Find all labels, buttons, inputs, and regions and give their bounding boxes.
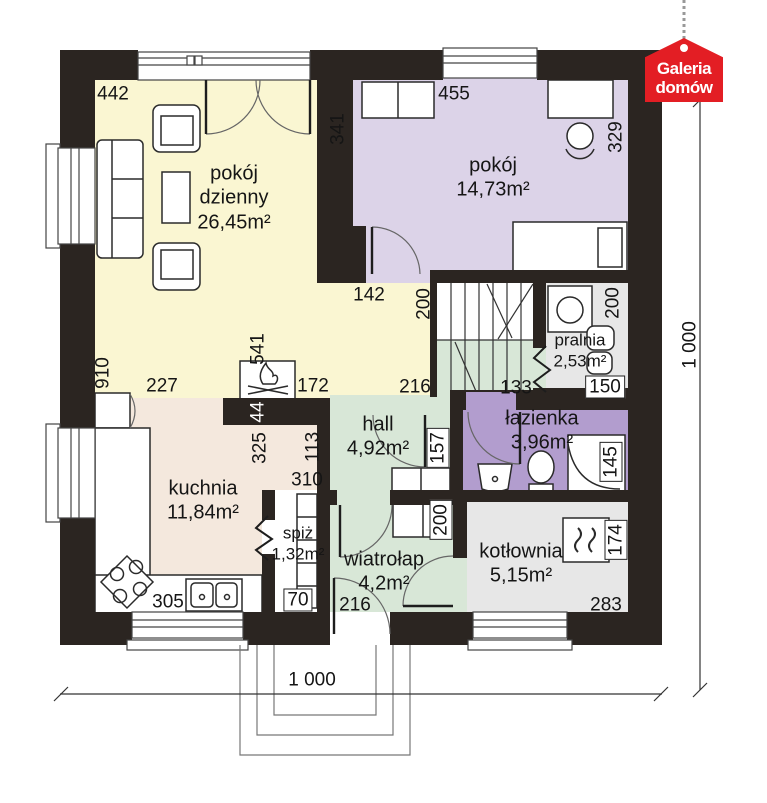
room-label-boiler: kotłownia 5,15m² <box>479 540 562 589</box>
dim-133: 133 <box>500 379 532 398</box>
dim-305: 305 <box>152 593 184 612</box>
boiler <box>563 518 609 562</box>
room-name: pokój <box>456 154 529 178</box>
room-label-kitchen: kuchnia 11,84m² <box>167 477 239 526</box>
dim-310: 310 <box>291 471 323 490</box>
dim-341: 341 <box>329 113 348 145</box>
room-name: kotłownia <box>479 540 562 564</box>
badge-line-2: domów <box>656 78 713 97</box>
chair <box>567 123 593 149</box>
room-label-vestibule: wiatrołap 4,2m² <box>344 548 424 597</box>
desk <box>548 80 613 118</box>
living-window <box>58 148 95 244</box>
room-label-laundry: pralnia 2,53m² <box>554 330 607 371</box>
room-area: 4,2m² <box>344 572 424 596</box>
room-area: 3,96m² <box>505 431 578 455</box>
dim-44: 44 <box>249 401 268 422</box>
room-area: 11,84m² <box>167 501 239 525</box>
room-name: wiatrołap <box>344 548 424 572</box>
dim-total-width: 1 000 <box>288 671 336 690</box>
boiler-bottom-sill <box>468 640 572 650</box>
kitchen-bottom-sill <box>127 640 248 650</box>
fridge <box>95 393 130 428</box>
toilet <box>528 451 554 483</box>
dim-150: 150 <box>585 376 625 399</box>
room-name: pokój dzienny <box>197 161 270 210</box>
floor-plan: 442 455 341 329 142 200 200 150 133 216 … <box>0 0 767 803</box>
room-floors <box>95 78 628 615</box>
kitchen-window <box>58 428 95 518</box>
dim-200-stairs: 200 <box>415 288 434 320</box>
dim-145: 145 <box>600 442 623 482</box>
terrace-glazing <box>138 52 310 80</box>
badge-line-1: Galeria <box>657 59 711 78</box>
pillow <box>598 228 622 267</box>
room-area: 5,15m² <box>479 564 562 588</box>
room-name: hall <box>347 413 409 437</box>
dim-325: 325 <box>251 432 270 464</box>
room-area: 1,32m² <box>272 544 325 565</box>
badge-hole-icon <box>680 44 688 52</box>
dim-113: 113 <box>304 432 323 462</box>
dim-200-vestibule: 200 <box>430 500 453 540</box>
dim-541: 541 <box>249 333 268 365</box>
room-area: 4,92m² <box>347 437 409 461</box>
room-name: łazienka <box>505 407 578 431</box>
room-label-bathroom: łazienka 3,96m² <box>505 407 578 456</box>
dim-216-entry: 216 <box>339 596 371 615</box>
room-label-hall: hall 4,92m² <box>347 413 409 462</box>
kitchen-bottom-window <box>132 612 243 638</box>
dim-442: 442 <box>97 85 129 104</box>
dim-227: 227 <box>146 377 178 396</box>
room-area: 2,53m² <box>554 351 607 372</box>
room-label-bedroom: pokój 14,73m² <box>456 154 529 203</box>
dim-172: 172 <box>297 377 329 396</box>
dim-216-hall: 216 <box>399 378 431 397</box>
boiler-bottom-window <box>473 612 567 638</box>
kitchen-counter-left <box>95 428 150 576</box>
room-name: spiż <box>272 523 325 544</box>
dim-total-height: 1 000 <box>681 321 700 369</box>
dim-910: 910 <box>94 357 113 389</box>
room-label-pantry: spiż 1,32m² <box>272 523 325 564</box>
dim-157: 157 <box>427 428 450 468</box>
room-name: kuchnia <box>167 477 239 501</box>
dim-174: 174 <box>605 520 628 560</box>
room-label-living: pokój dzienny 26,45m² <box>197 161 270 234</box>
room-area: 14,73m² <box>456 178 529 202</box>
dim-70: 70 <box>283 589 312 612</box>
dim-200-laundry: 200 <box>604 287 623 319</box>
room-area: 26,45m² <box>197 210 270 234</box>
dim-283: 283 <box>590 596 622 615</box>
dim-455: 455 <box>438 85 470 104</box>
sofa <box>97 140 143 258</box>
dim-329: 329 <box>607 121 626 153</box>
entry-steps <box>240 645 410 755</box>
floor-plan-drawing <box>0 0 767 803</box>
room-name: pralnia <box>554 330 607 351</box>
coffee-table <box>162 172 190 223</box>
dim-142: 142 <box>353 286 385 305</box>
